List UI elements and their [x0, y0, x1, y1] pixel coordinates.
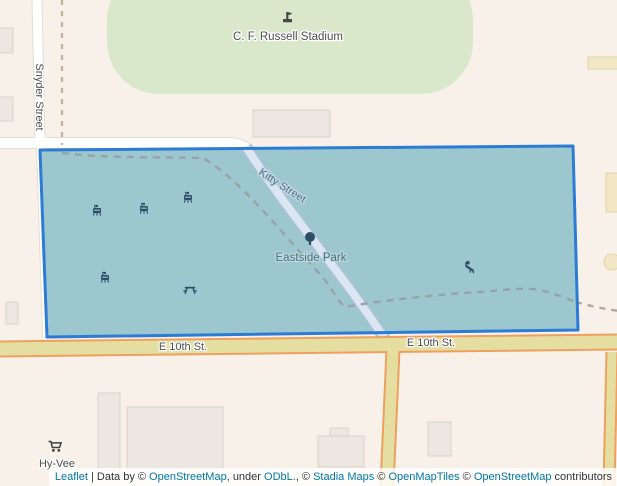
attribution-text: , © — [296, 471, 313, 483]
attribution-text: © — [460, 471, 474, 483]
map-tiles[interactable]: C. F. Russell Stadium Eastside Park Kitt… — [0, 0, 617, 486]
openmaptiles-link[interactable]: OpenMapTiles — [388, 471, 459, 483]
e10th-street-label-west: E 10th St. — [159, 341, 207, 353]
attribution-text: contributors — [551, 471, 612, 483]
leaflet-link[interactable]: Leaflet — [55, 471, 88, 483]
attribution-text: | Data by © — [88, 471, 149, 483]
openstreetmap-link[interactable]: OpenStreetMap — [149, 471, 227, 483]
odbl-link[interactable]: ODbL. — [264, 471, 296, 483]
stadia-maps-link[interactable]: Stadia Maps — [313, 471, 374, 483]
e10th-street-label-east: E 10th St. — [407, 337, 455, 349]
park-label: Eastside Park — [276, 252, 347, 264]
attribution-bar: Leaflet | Data by © OpenStreetMap, under… — [49, 468, 617, 486]
snyder-street-label: Snyder Street — [33, 63, 45, 130]
attribution-text: , under — [227, 471, 264, 483]
map-canvas[interactable]: C. F. Russell Stadium Eastside Park Kitt… — [0, 0, 617, 486]
openstreetmap-link-2[interactable]: OpenStreetMap — [474, 471, 552, 483]
stadium-label: C. F. Russell Stadium — [233, 31, 343, 43]
attribution-text: © — [374, 471, 388, 483]
